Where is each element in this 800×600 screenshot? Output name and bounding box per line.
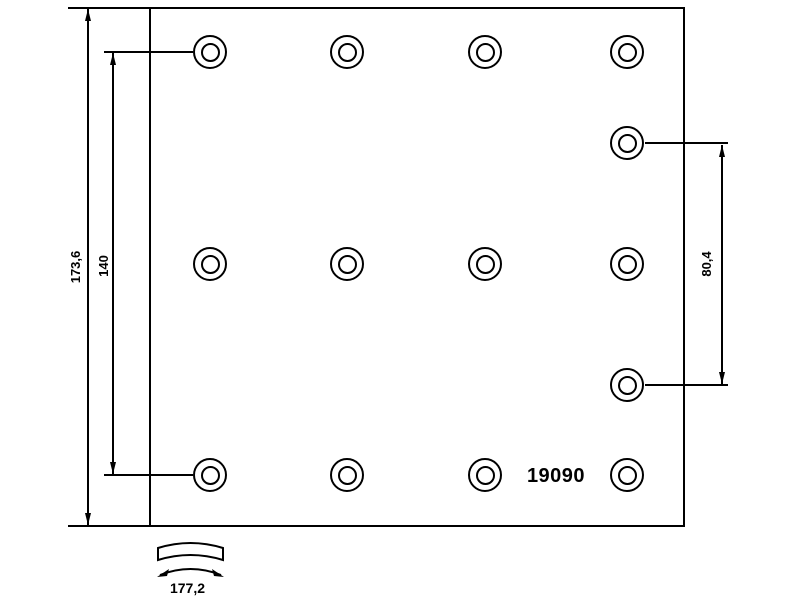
rivet-hole-inner — [618, 134, 637, 153]
dimension-label-right-span: 80,4 — [697, 234, 717, 294]
rivet-hole-inner — [476, 255, 495, 274]
rivet-hole — [468, 247, 502, 281]
rivet-hole — [610, 458, 644, 492]
dimension-arrow-down-icon — [719, 372, 725, 384]
dimension-arrow-down-icon — [110, 462, 116, 474]
rivet-hole — [468, 35, 502, 69]
dimension-label-overall-height: 173,6 — [66, 237, 86, 297]
extension-line-top-left — [68, 7, 149, 9]
rivet-hole — [468, 458, 502, 492]
rivet-hole — [610, 126, 644, 160]
rivet-hole-inner — [476, 466, 495, 485]
extension-line-row3-left — [104, 474, 193, 476]
rivet-hole — [330, 35, 364, 69]
rivet-hole — [610, 247, 644, 281]
rivet-hole-inner — [338, 466, 357, 485]
dimension-line-overall-height — [87, 9, 89, 525]
rivet-hole-inner — [201, 255, 220, 274]
part-number: 19090 — [516, 465, 596, 488]
rivet-hole — [193, 35, 227, 69]
rivet-hole — [330, 458, 364, 492]
rivet-hole-inner — [618, 376, 637, 395]
lining-plate-outline — [149, 7, 685, 527]
dimension-line-right-span — [721, 145, 723, 384]
dimension-arrow-up-icon — [719, 145, 725, 157]
rivet-hole — [330, 247, 364, 281]
arc-arrow-left-icon — [157, 569, 169, 577]
arc-arrow-right-icon — [212, 569, 224, 577]
arc-length-label: 177,2 — [150, 580, 225, 596]
rivet-hole — [193, 247, 227, 281]
rivet-hole-inner — [476, 43, 495, 62]
dimension-arrow-up-icon — [110, 53, 116, 65]
rivet-hole-inner — [338, 255, 357, 274]
arc-section-symbol — [143, 535, 238, 583]
dimension-arrow-up-icon — [85, 9, 91, 21]
technical-drawing-canvas: 173,6 140 80,4 19090 177,2 — [0, 0, 800, 600]
dimension-arrow-down-icon — [85, 513, 91, 525]
rivet-hole-inner — [618, 255, 637, 274]
rivet-hole-inner — [618, 466, 637, 485]
rivet-hole — [610, 35, 644, 69]
rivet-hole-inner — [201, 466, 220, 485]
rivet-hole-inner — [201, 43, 220, 62]
dimension-label-hole-span: 140 — [94, 236, 114, 296]
arc-band-shape — [158, 543, 223, 560]
rivet-hole — [610, 368, 644, 402]
extension-line-row1-left — [104, 51, 193, 53]
rivet-hole — [193, 458, 227, 492]
extension-line-bottom-left — [68, 525, 149, 527]
rivet-hole-inner — [618, 43, 637, 62]
rivet-hole-inner — [338, 43, 357, 62]
extension-line-right-bottom — [645, 384, 728, 386]
arc-dimension-line — [160, 569, 221, 575]
extension-line-right-top — [645, 142, 728, 144]
